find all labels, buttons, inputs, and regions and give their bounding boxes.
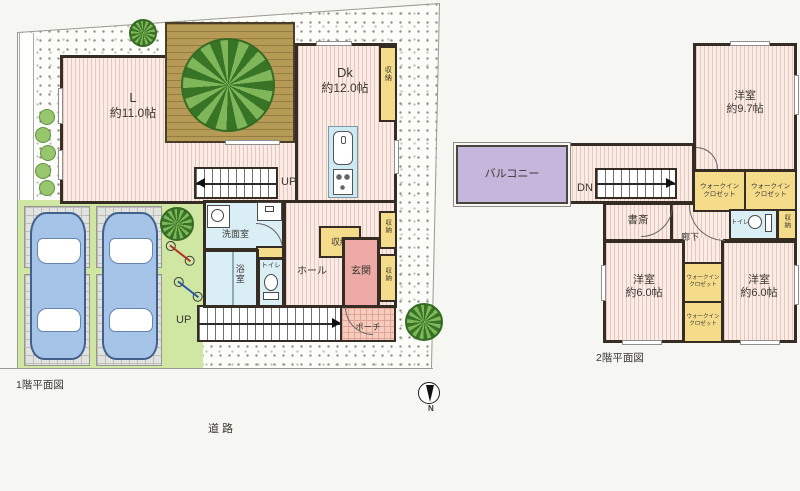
floor-plan-canvas: UP UP 収納 収納 玄関 収納 収納 ポーチ 洗面室 浴室 トイレ: [0, 0, 800, 491]
toilet-2f-label: トイレ: [731, 220, 749, 227]
dk-label: Dk 約12.0帖: [300, 65, 390, 95]
dk-name: Dk: [300, 65, 390, 81]
window-marker: [740, 340, 780, 345]
bedroom-west-label: 洋室 約6.0帖: [604, 274, 684, 300]
washing-machine-icon: [207, 205, 230, 228]
bath-label: 浴室: [234, 264, 245, 284]
window-marker: [316, 41, 352, 46]
floor2-caption: 2階平面図: [596, 352, 644, 365]
hall-label: ホール: [283, 266, 341, 278]
road-edge-line: [0, 368, 433, 369]
toilet-icon: [264, 274, 278, 291]
bush-icon: [39, 180, 55, 196]
storage-label: 収納: [383, 267, 391, 282]
bush-icon: [40, 145, 56, 161]
floor1-caption: 1階平面図: [16, 379, 64, 392]
window-marker: [225, 140, 280, 145]
approach-steps: [197, 305, 343, 342]
balcony-label: バルコニー: [462, 168, 562, 181]
toilet-label: トイレ: [258, 262, 284, 270]
car-windshield: [37, 238, 81, 264]
arrow-left-icon: [196, 178, 205, 188]
wic-label: ウォークイン クロゼット: [745, 183, 796, 199]
car-rear-window: [109, 308, 153, 332]
compass-icon: [418, 382, 440, 404]
window-marker: [794, 75, 799, 115]
stairs-up: [194, 167, 278, 199]
stairs-up-label: UP: [281, 176, 296, 189]
tree-icon: [160, 207, 194, 241]
toilet-tank-icon: [263, 292, 279, 300]
toilet-icon: [748, 215, 762, 229]
bedroom-east-label: 洋室 約6.0帖: [721, 274, 797, 300]
living-label: L 約11.0帖: [83, 90, 183, 120]
compass-needle: [426, 385, 434, 402]
bush-icon: [39, 109, 55, 125]
stairs-down: [595, 168, 677, 199]
kitchen-stove-icon: [333, 169, 353, 195]
car-icon: [102, 212, 158, 360]
bedroom-main-label: 洋室 約9.7帖: [703, 90, 787, 116]
north-label: N: [428, 404, 434, 414]
window-marker: [58, 150, 63, 180]
washroom-label: 洗面室: [222, 229, 249, 240]
wic-label: ウォークイン クロゼット: [694, 183, 745, 199]
window-marker: [394, 140, 399, 174]
bedroom-main-size: 約9.7帖: [703, 103, 787, 116]
storage-label: 収納: [782, 214, 790, 229]
car-windshield: [109, 238, 153, 264]
wic-label: ウォークイン クロゼット: [684, 314, 722, 327]
entrance-label: 玄関: [342, 266, 380, 278]
window-marker: [58, 88, 63, 124]
storage-label: 収納: [383, 219, 391, 234]
window-marker: [730, 41, 770, 46]
wic-label: ウォークイン クロゼット: [684, 275, 722, 288]
tree-icon: [405, 303, 443, 341]
arrow-right-icon: [666, 178, 675, 188]
window-marker: [622, 340, 662, 345]
toilet-tank-icon: [765, 214, 772, 232]
tree-icon: [129, 19, 157, 47]
bush-icon: [35, 127, 51, 143]
living-size: 約11.0帖: [83, 106, 183, 120]
room-bathroom: [203, 249, 259, 308]
kitchen-sink-icon: [333, 131, 353, 165]
stairs-down-label: DN: [577, 182, 593, 195]
window-marker: [601, 265, 606, 301]
dk-size: 約12.0帖: [300, 81, 390, 95]
car-icon: [30, 212, 86, 360]
retaining-wall: [19, 33, 34, 200]
road-label: 道路: [208, 423, 236, 436]
approach-up-label: UP: [176, 314, 191, 327]
bush-icon: [35, 163, 51, 179]
sink-icon: [257, 202, 282, 221]
car-rear-window: [37, 308, 81, 332]
window-marker: [794, 265, 799, 305]
bedroom-main-name: 洋室: [703, 90, 787, 103]
living-name: L: [83, 90, 183, 106]
deck-tree-icon: [181, 38, 275, 132]
